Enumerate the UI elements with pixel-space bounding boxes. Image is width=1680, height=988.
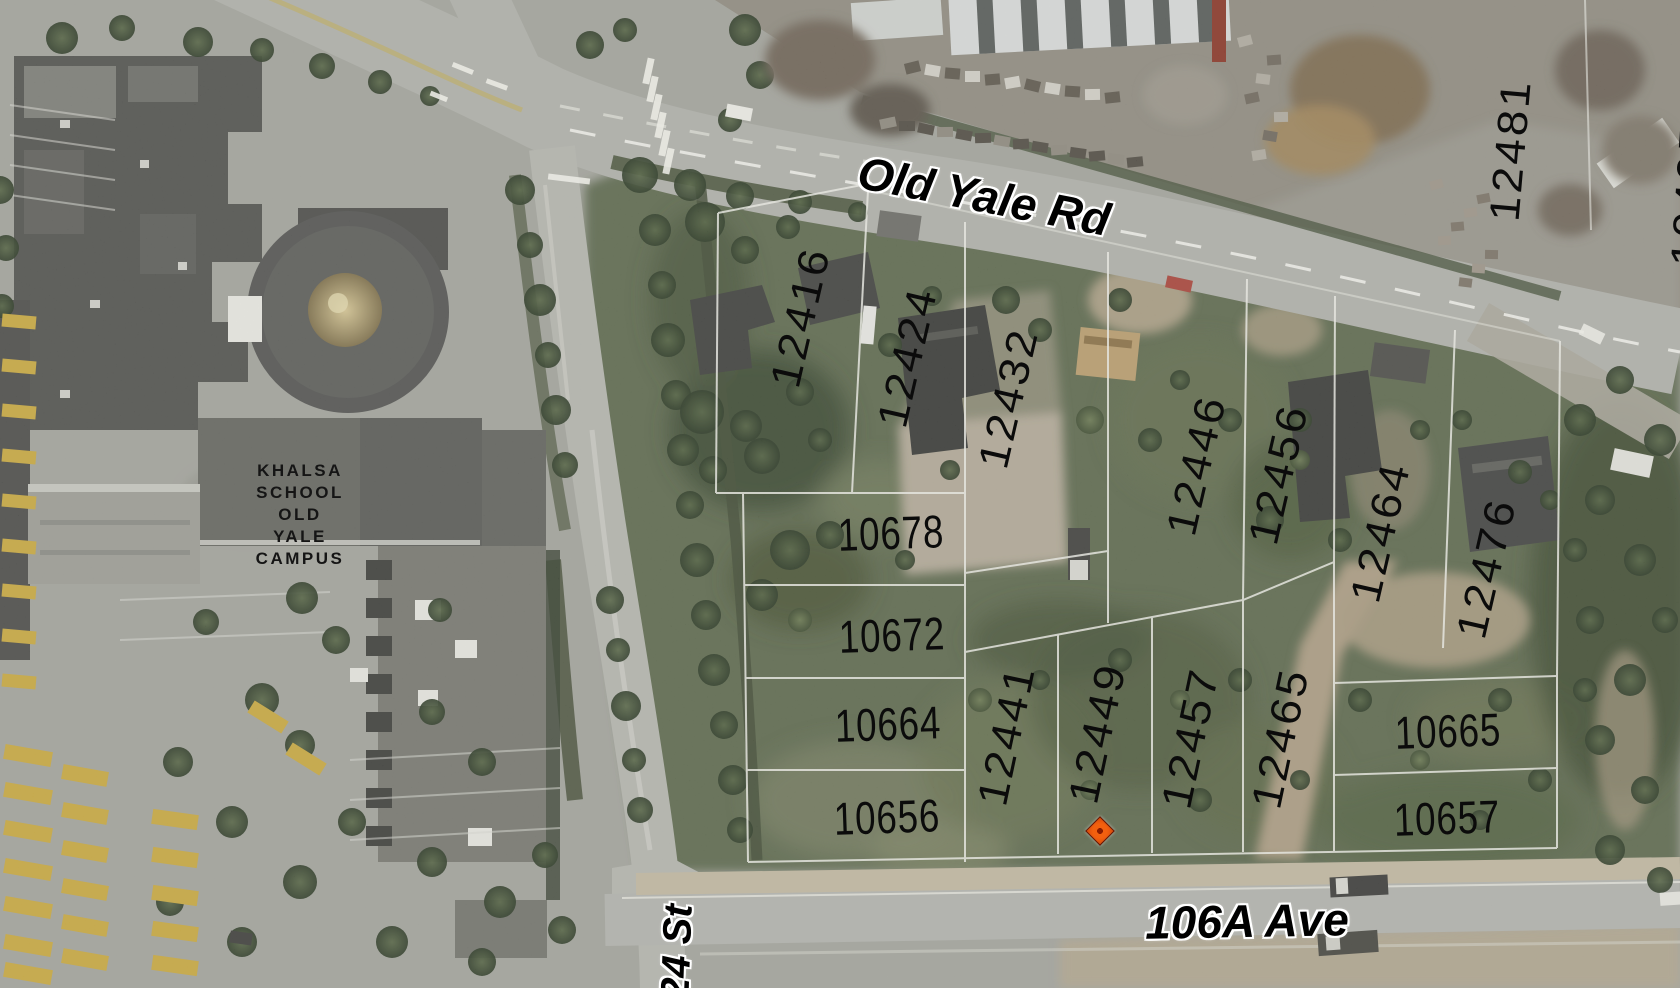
aerial-imagery [0, 0, 1680, 988]
aerial-map-canvas[interactable]: 1241612424124321244612456124641247612481… [0, 0, 1680, 988]
school-campus-label: KHALSASCHOOLOLDYALECAMPUS [256, 460, 345, 570]
photo-grain [0, 0, 1680, 988]
